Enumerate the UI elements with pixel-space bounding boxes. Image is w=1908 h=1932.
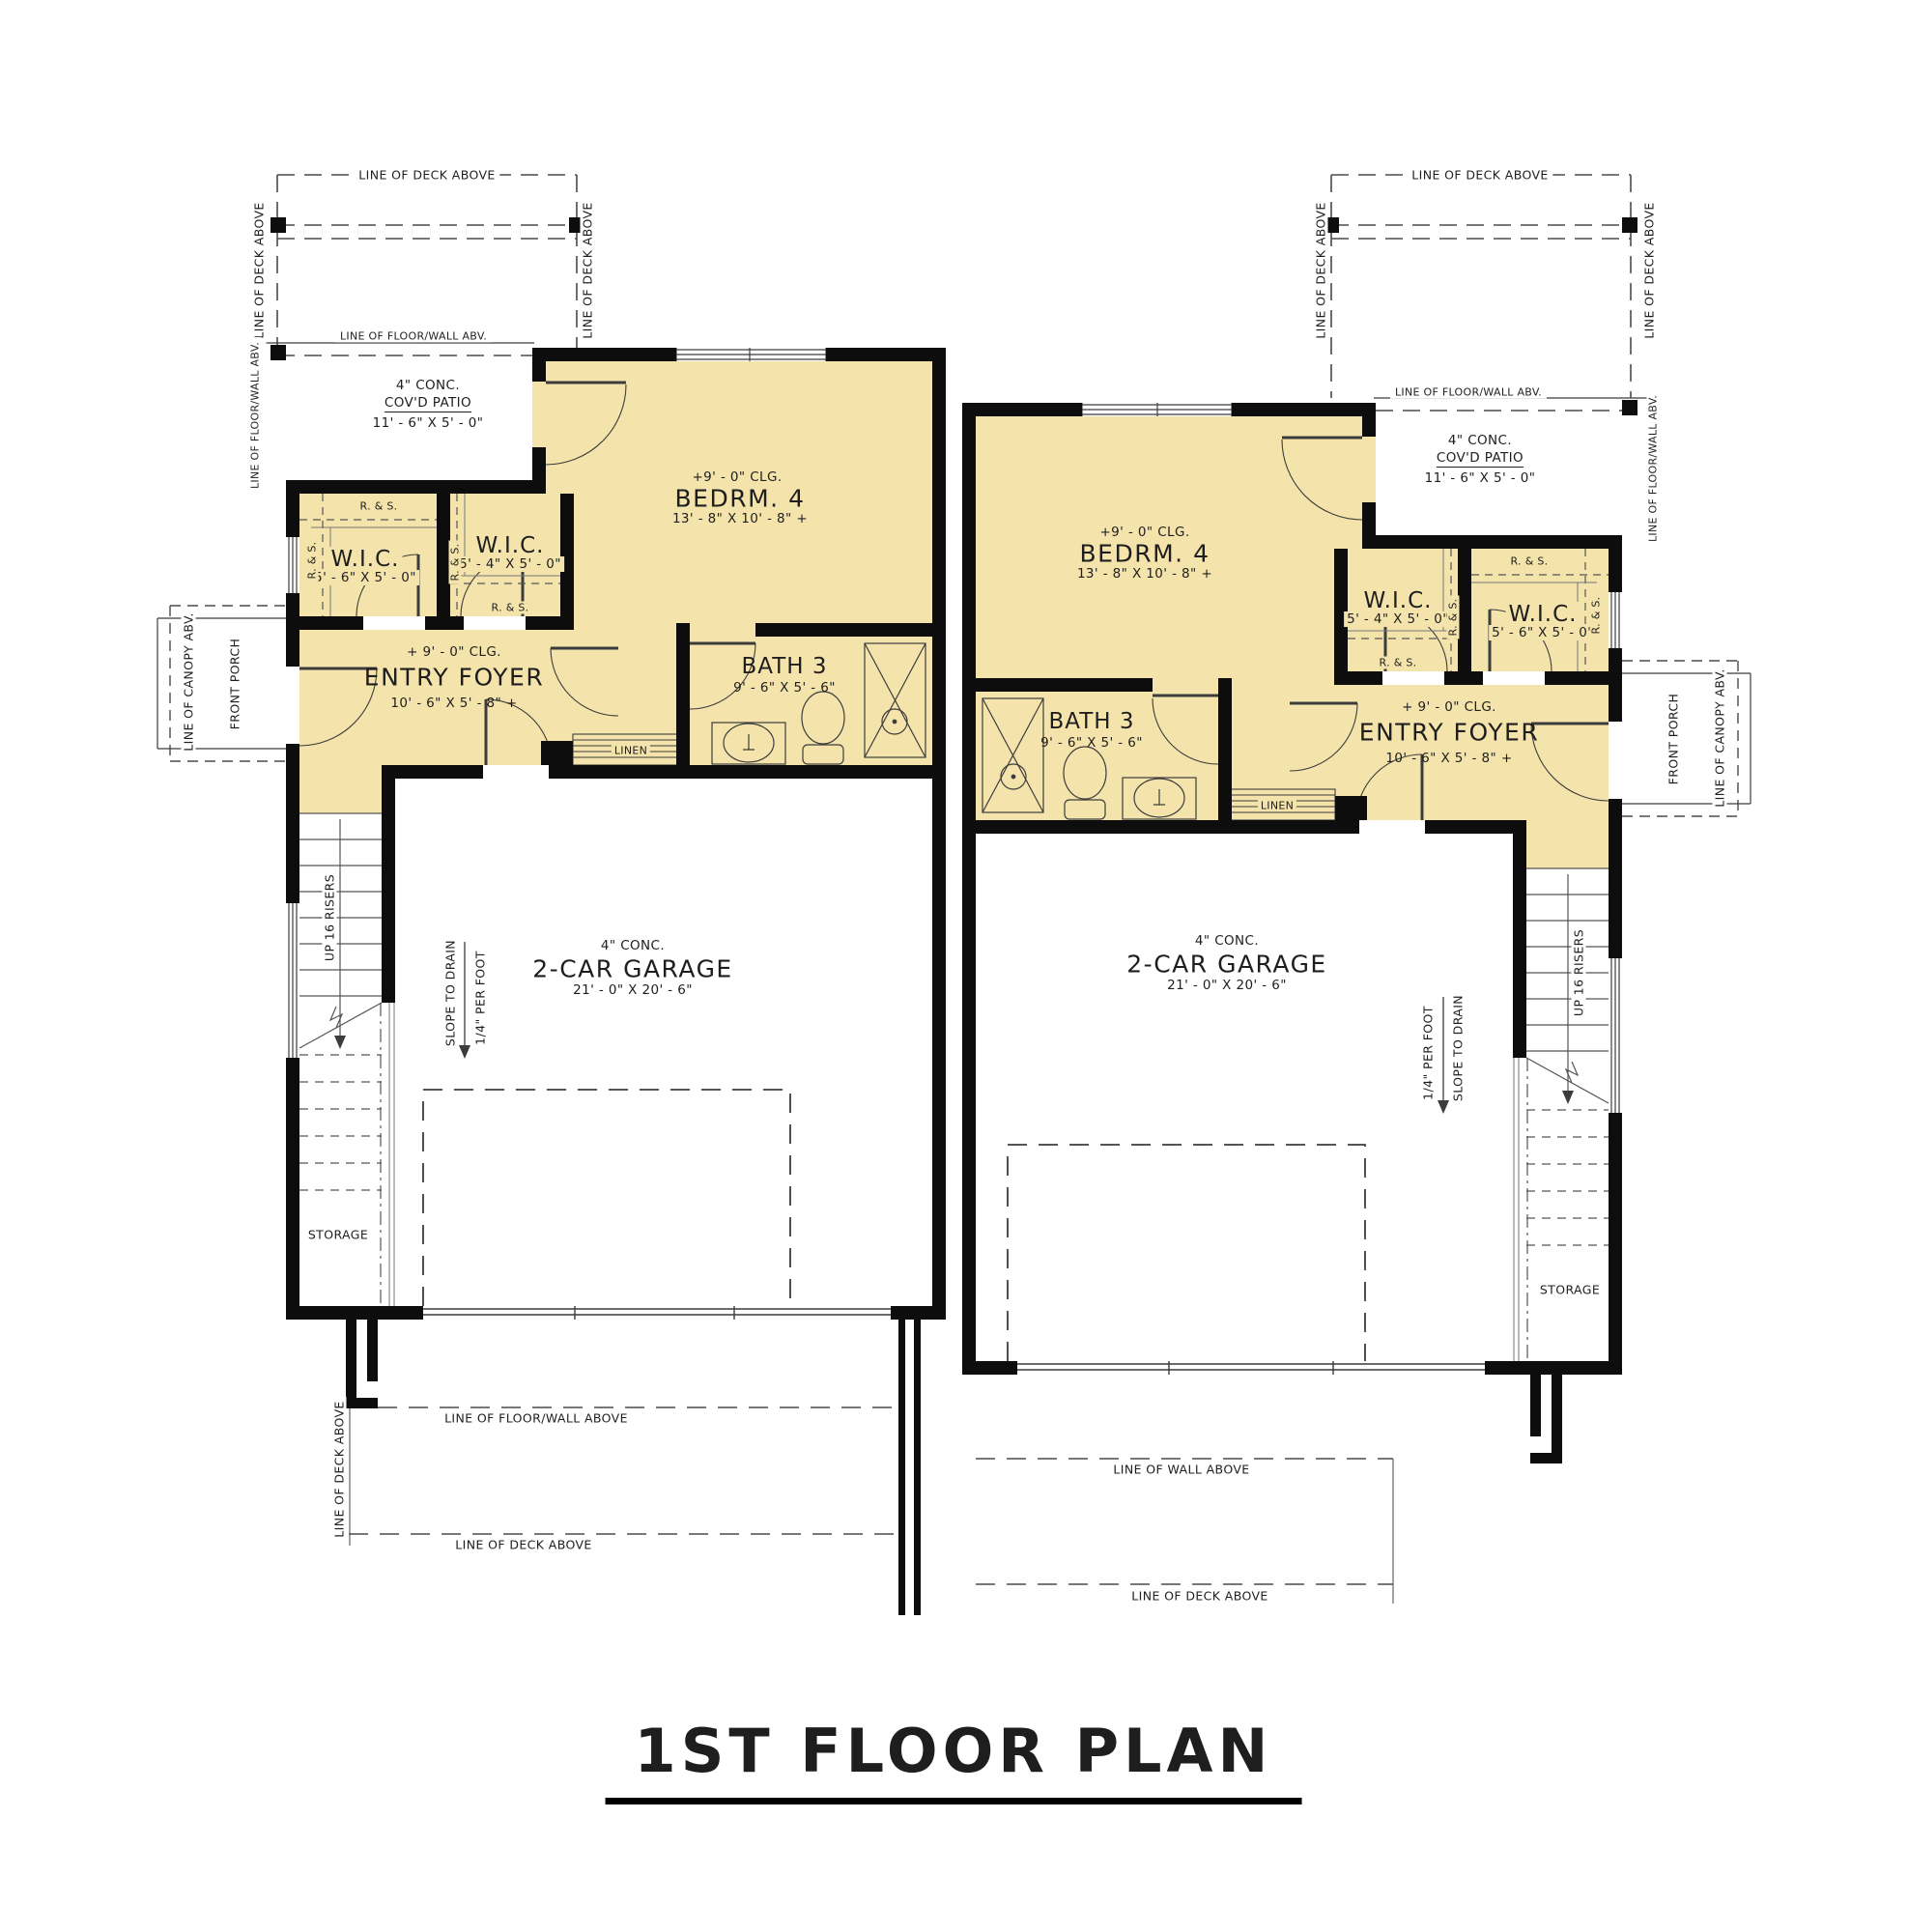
canopy-label: LINE OF CANOPY ABV. xyxy=(182,608,196,755)
patio-name: COV'D PATIO xyxy=(384,395,471,412)
deck-above-label: LINE OF DECK ABOVE xyxy=(581,197,595,343)
canopy-porch-right xyxy=(1622,661,1751,816)
garage-dims: 21' - 0" X 20' - 6" xyxy=(573,982,693,998)
rod-shelf-label: R. & S. xyxy=(489,602,532,614)
wall xyxy=(286,1058,299,1320)
wall xyxy=(1218,692,1232,820)
rod-shelf-label: R. & S. xyxy=(1377,657,1420,669)
wic-dims: 5' - 4" X 5' - 0" xyxy=(1344,611,1452,627)
canopy-label: LINE OF CANOPY ABV. xyxy=(1713,664,1727,811)
garage-doors xyxy=(423,1306,1485,1375)
wic-dims: 5' - 6" X 5' - 0" xyxy=(311,570,419,585)
canopy-porch-left xyxy=(157,606,286,761)
floor-plan: LINE OF DECK ABOVE LINE OF DECK ABOVE LI… xyxy=(0,0,1908,1932)
sheet-title: 1ST FLOOR PLAN xyxy=(606,1716,1302,1804)
wic-dims: 5' - 6" X 5' - 0" xyxy=(1489,625,1597,640)
floor-wall-abv-label: LINE OF FLOOR/WALL ABV. xyxy=(1647,390,1660,547)
wall xyxy=(1609,799,1622,958)
pilaster xyxy=(367,1320,378,1381)
deck-post xyxy=(271,345,286,360)
patio-dims: 11' - 6" X 5' - 0" xyxy=(373,415,484,431)
bedroom-name: BEDRM. 4 xyxy=(675,485,806,513)
wall xyxy=(1335,796,1367,820)
patio-name: COV'D PATIO xyxy=(1437,450,1524,468)
wic-name: W.I.C. xyxy=(1506,602,1581,627)
pilaster xyxy=(1552,1375,1562,1463)
wall xyxy=(1232,403,1376,416)
garage-material: 4" CONC. xyxy=(601,938,665,953)
wall xyxy=(1334,549,1348,671)
deck-post xyxy=(271,217,286,233)
wall xyxy=(1362,502,1376,549)
slope-label-2: 1/4" PER FOOT xyxy=(473,951,488,1045)
wall xyxy=(1545,671,1622,685)
deck-lines-left xyxy=(277,175,577,353)
garage-dims: 21' - 0" X 20' - 6" xyxy=(1167,978,1287,993)
wall xyxy=(1485,1361,1622,1375)
storage-label: STORAGE xyxy=(1540,1283,1600,1297)
pilaster xyxy=(1530,1375,1541,1436)
front-porch-label: FRONT PORCH xyxy=(1666,689,1681,790)
stairs-label: UP 16 RISERS xyxy=(323,869,337,966)
linen-label: LINEN xyxy=(1258,800,1296,812)
deck-above-label: LINE OF DECK ABOVE xyxy=(450,1538,596,1552)
slope-label-1: SLOPE TO DRAIN xyxy=(1451,995,1466,1101)
linen-label: LINEN xyxy=(612,745,650,757)
rod-shelf-label: R. & S. xyxy=(449,541,462,584)
wall xyxy=(532,348,676,361)
bath-name: BATH 3 xyxy=(741,654,827,679)
entry-dims: 10' - 6" X 5' - 8" + xyxy=(390,696,517,711)
floor-wall-above-label: LINE OF FLOOR/WALL ABOVE xyxy=(440,1411,633,1426)
garage-name: 2-CAR GARAGE xyxy=(532,955,732,983)
floor-wall-abv-label: LINE OF FLOOR/WALL ABV. xyxy=(335,330,492,343)
wall xyxy=(1218,678,1232,692)
wall xyxy=(1334,671,1382,685)
deck-post xyxy=(1622,400,1637,415)
wall xyxy=(549,765,932,779)
wall xyxy=(1513,834,1526,1058)
bedroom-name: BEDRM. 4 xyxy=(1080,540,1210,568)
floor-wall-abv-label: LINE OF FLOOR/WALL ABV. xyxy=(249,337,262,494)
deck-above-label: LINE OF DECK ABOVE xyxy=(1126,1589,1272,1604)
deck-above-label: LINE OF DECK ABOVE xyxy=(1314,197,1328,343)
wall xyxy=(425,616,464,630)
party-wall-left xyxy=(932,348,946,1320)
patio-material: 4" CONC. xyxy=(1448,433,1512,448)
wic-name: W.I.C. xyxy=(1361,588,1436,613)
wall xyxy=(286,744,299,903)
wall xyxy=(1609,648,1622,722)
deck-above-label: LINE OF DECK ABOVE xyxy=(252,197,267,343)
wall xyxy=(676,623,690,637)
bedroom-ceiling: +9' - 0" CLG. xyxy=(692,469,782,485)
wall xyxy=(286,593,299,667)
wall xyxy=(1458,549,1471,671)
wall xyxy=(541,741,573,765)
wall-above-label: LINE OF WALL ABOVE xyxy=(1108,1463,1254,1477)
wic-name: W.I.C. xyxy=(328,547,403,572)
bedroom-dims: 13' - 8" X 10' - 8" + xyxy=(672,511,808,526)
rod-shelf-label: R. & S. xyxy=(1508,555,1552,568)
wall xyxy=(286,480,546,494)
rod-shelf-label: R. & S. xyxy=(1590,594,1603,638)
rod-shelf-label: R. & S. xyxy=(1447,596,1460,639)
wall xyxy=(976,1361,1017,1375)
deck-above-label: LINE OF DECK ABOVE xyxy=(354,168,499,183)
patio-dims: 11' - 6" X 5' - 0" xyxy=(1425,470,1536,486)
bedroom-dims: 13' - 8" X 10' - 8" + xyxy=(1077,566,1212,582)
entry-name: ENTRY FOYER xyxy=(364,664,544,692)
entry-name: ENTRY FOYER xyxy=(1359,719,1539,747)
slope-label-2: 1/4" PER FOOT xyxy=(1421,1006,1436,1100)
patio-material: 4" CONC. xyxy=(396,378,460,393)
entry-ceiling: + 9' - 0" CLG. xyxy=(407,644,501,660)
pilaster xyxy=(346,1398,378,1408)
pilaster xyxy=(346,1320,356,1408)
bedroom-ceiling: +9' - 0" CLG. xyxy=(1099,525,1189,540)
garage-stalls xyxy=(423,1090,1365,1361)
wall xyxy=(526,616,574,630)
bath-dims: 9' - 6" X 5' - 6" xyxy=(1040,735,1143,751)
linework-layer xyxy=(0,0,1908,1932)
party-wall-extension xyxy=(914,1320,921,1615)
wall xyxy=(962,403,1082,416)
wall xyxy=(891,1306,932,1320)
party-wall-right xyxy=(962,403,976,1375)
bath-name: BATH 3 xyxy=(1048,709,1134,734)
entry-dims: 10' - 6" X 5' - 8" + xyxy=(1385,751,1512,766)
storage-label: STORAGE xyxy=(308,1228,368,1242)
rod-shelf-label: R. & S. xyxy=(357,500,401,513)
slope-label-1: SLOPE TO DRAIN xyxy=(443,940,458,1046)
front-porch-label: FRONT PORCH xyxy=(228,634,242,735)
windows-right xyxy=(1082,403,1619,1113)
wic-dims: 5' - 4" X 5' - 0" xyxy=(456,556,564,572)
stairs-label: UP 16 RISERS xyxy=(1572,924,1586,1021)
wall xyxy=(286,616,363,630)
wall xyxy=(676,637,690,765)
wall xyxy=(1444,671,1483,685)
party-wall-extension xyxy=(898,1320,905,1615)
wall xyxy=(1362,535,1622,549)
pilaster xyxy=(1530,1453,1562,1463)
wic-name: W.I.C. xyxy=(473,533,548,558)
wall xyxy=(755,623,932,637)
floor-wall-abv-label: LINE OF FLOOR/WALL ABV. xyxy=(1390,386,1547,399)
wall xyxy=(560,494,574,616)
deck-lines-right xyxy=(1331,175,1631,398)
wall xyxy=(382,779,395,1003)
deck-post xyxy=(1622,217,1637,233)
wall xyxy=(532,447,546,494)
deck-above-label: LINE OF DECK ABOVE xyxy=(332,1396,347,1542)
wall xyxy=(382,765,483,779)
garage-material: 4" CONC. xyxy=(1195,933,1259,949)
deck-above-label: LINE OF DECK ABOVE xyxy=(1407,168,1552,183)
wall xyxy=(286,1306,423,1320)
rod-shelf-label: R. & S. xyxy=(306,539,319,582)
wall xyxy=(1425,820,1526,834)
entry-ceiling: + 9' - 0" CLG. xyxy=(1402,699,1496,715)
wall xyxy=(826,348,946,361)
bath-dims: 9' - 6" X 5' - 6" xyxy=(733,680,836,696)
wall xyxy=(976,820,1359,834)
wall xyxy=(976,678,1153,692)
wall xyxy=(1609,1113,1622,1375)
deck-above-label: LINE OF DECK ABOVE xyxy=(1642,197,1657,343)
windows-left xyxy=(289,348,826,1058)
garage-name: 2-CAR GARAGE xyxy=(1126,951,1326,979)
bottom-annotations xyxy=(349,1407,1393,1604)
